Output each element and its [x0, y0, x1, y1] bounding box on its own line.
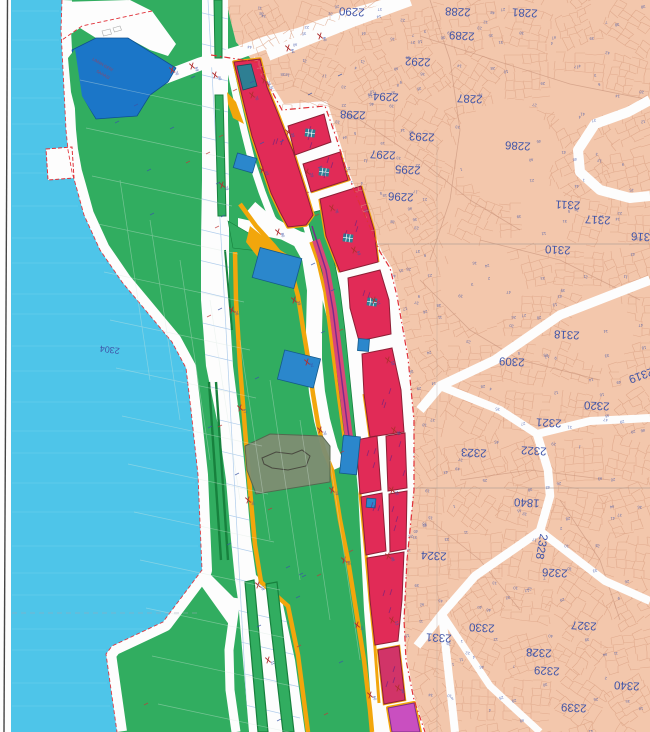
svg-text:2324: 2324 — [420, 548, 447, 561]
svg-text:2326: 2326 — [542, 565, 568, 578]
svg-text:2321: 2321 — [536, 415, 562, 428]
svg-text:2288: 2288 — [445, 4, 471, 17]
svg-text:1840: 1840 — [514, 495, 540, 508]
svg-text:2316: 2316 — [631, 229, 650, 242]
svg-text:2286: 2286 — [505, 138, 531, 151]
svg-text:2281: 2281 — [512, 5, 538, 18]
svg-text:2323: 2323 — [461, 445, 487, 458]
svg-text:33: 33 — [540, 276, 545, 281]
svg-text:22: 22 — [617, 211, 622, 216]
svg-text:2328: 2328 — [526, 645, 552, 658]
svg-text:19: 19 — [380, 141, 385, 146]
svg-text:2292: 2292 — [405, 54, 431, 67]
svg-text:2329: 2329 — [534, 663, 560, 676]
svg-text:2340: 2340 — [614, 678, 640, 691]
svg-text:2327: 2327 — [571, 618, 597, 631]
svg-text:2289: 2289 — [449, 28, 475, 41]
svg-text:31: 31 — [562, 219, 567, 224]
svg-text:2318: 2318 — [554, 327, 580, 340]
svg-text:2295: 2295 — [395, 162, 421, 175]
svg-text:2317: 2317 — [585, 212, 611, 225]
svg-text:2310: 2310 — [545, 242, 571, 255]
svg-text:2330: 2330 — [469, 620, 495, 633]
svg-text:2298: 2298 — [340, 107, 366, 120]
svg-text:2339: 2339 — [561, 700, 587, 713]
svg-text:2311: 2311 — [555, 197, 580, 210]
svg-text:2294: 2294 — [372, 89, 399, 102]
svg-text:2331: 2331 — [426, 630, 452, 643]
svg-text:2297: 2297 — [370, 147, 396, 160]
svg-text:2322: 2322 — [521, 443, 547, 456]
svg-text:2320: 2320 — [584, 398, 610, 411]
svg-text:2309: 2309 — [499, 354, 525, 367]
svg-text:2293: 2293 — [409, 129, 435, 142]
svg-text:35: 35 — [625, 699, 630, 704]
svg-text:2296: 2296 — [388, 189, 414, 202]
svg-text:2287: 2287 — [457, 91, 483, 104]
svg-text:2290: 2290 — [339, 4, 365, 17]
